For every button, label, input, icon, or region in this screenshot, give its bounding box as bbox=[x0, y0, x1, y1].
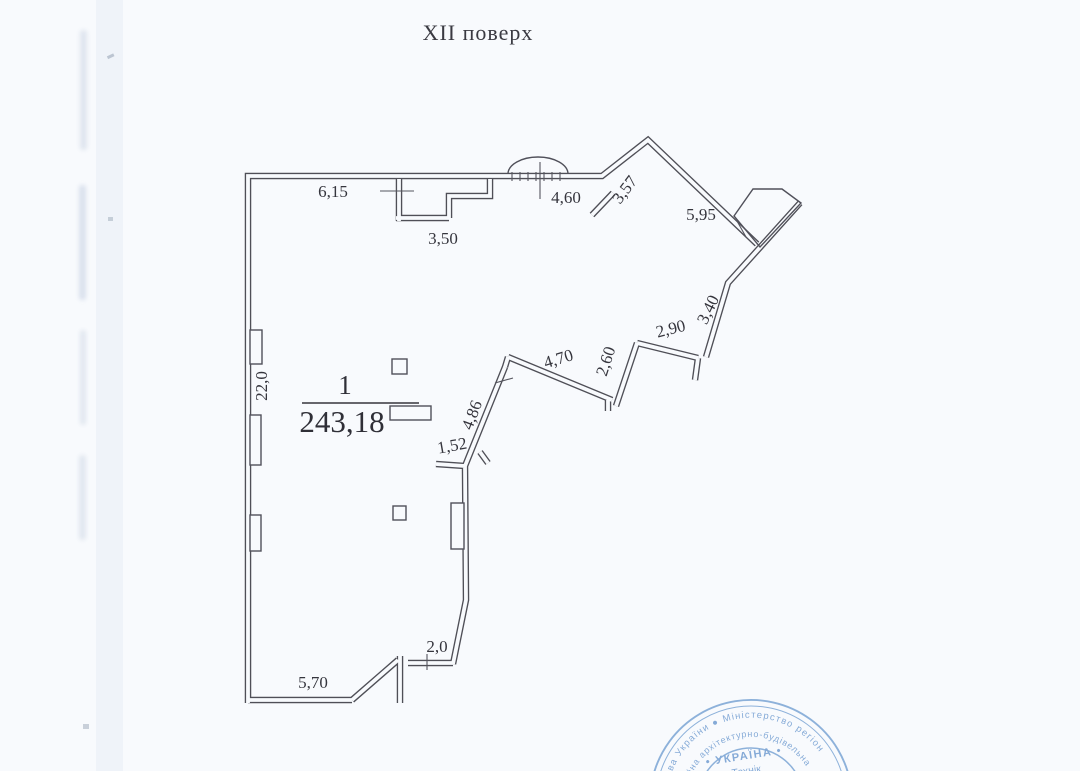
print-through-smudges bbox=[79, 30, 87, 540]
scan-speck bbox=[83, 724, 89, 729]
dim-bottom-small: 2,0 bbox=[426, 637, 447, 656]
dim-right-mid: 2,90 bbox=[654, 316, 687, 342]
dim-mid-small: 1,52 bbox=[436, 434, 469, 458]
unit-label: 1 243,18 bbox=[299, 370, 419, 439]
dim-top: 6,15 bbox=[318, 182, 348, 201]
left-wall-windows bbox=[250, 330, 262, 551]
dim-niche: 3,50 bbox=[428, 229, 458, 248]
dim-corridor: 3,57 bbox=[608, 172, 641, 208]
scan-shadow-band bbox=[96, 0, 123, 771]
page-title: XII поверх bbox=[423, 20, 534, 45]
official-stamp: господарства України ● Міністерство регі… bbox=[635, 685, 866, 771]
unit-number: 1 bbox=[338, 370, 352, 400]
window-niche bbox=[250, 330, 262, 364]
stamp-center-title: Технік bbox=[731, 763, 762, 771]
scan-edge-band bbox=[79, 0, 123, 771]
column bbox=[393, 506, 406, 520]
column bbox=[390, 406, 431, 420]
scanned-floorplan-page: { "title": "XII поверх", "unit": { "numb… bbox=[0, 0, 1080, 771]
dim-mid-upper: 4,70 bbox=[541, 345, 575, 372]
column bbox=[392, 359, 407, 374]
wall-pilaster bbox=[451, 503, 464, 549]
dim-window-top: 4,60 bbox=[551, 188, 581, 207]
scan-speck bbox=[108, 217, 113, 221]
window-niche bbox=[250, 515, 261, 551]
dim-bottom: 5,70 bbox=[298, 673, 328, 692]
unit-area: 243,18 bbox=[299, 404, 384, 439]
bay-window-arc bbox=[508, 157, 568, 174]
floor-plan-scan: XII поверх 1 243,18 6,15 3, bbox=[0, 0, 1080, 771]
dim-right-inner: 2,60 bbox=[592, 344, 619, 378]
window-niche bbox=[250, 415, 261, 465]
dim-left-wall: 22,0 bbox=[252, 371, 271, 401]
balcony-outline bbox=[734, 189, 801, 247]
dim-diagonal-long: 5,95 bbox=[686, 205, 716, 224]
